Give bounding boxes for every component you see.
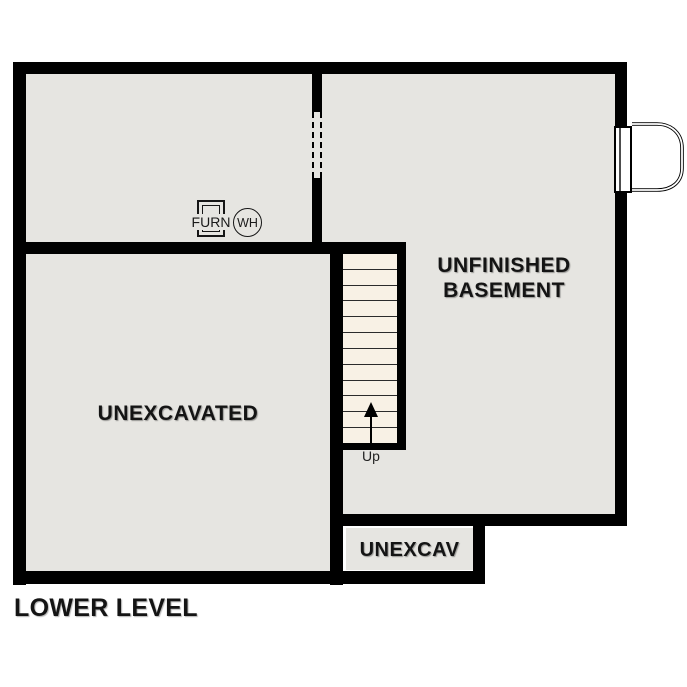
wall-unexcav-right <box>473 514 485 584</box>
stair-tread <box>343 301 397 317</box>
stair-tread <box>343 349 397 365</box>
wall-left <box>13 62 26 585</box>
stair-tread <box>343 381 397 397</box>
stair-tread <box>343 254 397 270</box>
floor-plan: Up FURN WH UNFINISHED BASEMENT UNEXCAVAT… <box>0 0 687 687</box>
wall-top <box>13 62 627 74</box>
exterior-door-areaway <box>608 112 687 197</box>
door-leaf <box>615 127 631 192</box>
stair-tread <box>343 333 397 349</box>
stair-tread <box>343 286 397 302</box>
water-heater-label: WH <box>237 216 258 230</box>
up-arrow-stem <box>370 416 372 443</box>
wall-opening-dashed <box>312 112 322 178</box>
wall-bottom <box>13 571 485 584</box>
unfinished-basement-label: UNFINISHED BASEMENT <box>404 253 604 303</box>
unexcav-label: UNEXCAV <box>346 538 473 563</box>
furnace-label: FURN <box>190 214 232 230</box>
unexcavated-label: UNEXCAVATED <box>78 401 278 426</box>
wall-divider-lower <box>312 178 322 242</box>
up-arrow-icon <box>364 402 378 417</box>
unfinished-basement-label-line2: BASEMENT <box>404 278 604 303</box>
stairs-up-label: Up <box>352 448 390 464</box>
stair-tread <box>343 365 397 381</box>
floor-utility-room <box>26 74 312 242</box>
areaway-outline <box>632 124 682 190</box>
wall-mid-horizontal <box>13 242 405 254</box>
water-heater-symbol: WH <box>233 208 262 237</box>
page-title: LOWER LEVEL <box>14 594 198 623</box>
areaway-outline-inner <box>632 124 682 190</box>
wall-stair-left <box>330 242 343 585</box>
wall-divider-upper <box>312 74 322 112</box>
stair-tread <box>343 270 397 286</box>
stair-tread <box>343 317 397 333</box>
unfinished-basement-label-line1: UNFINISHED <box>404 253 604 278</box>
